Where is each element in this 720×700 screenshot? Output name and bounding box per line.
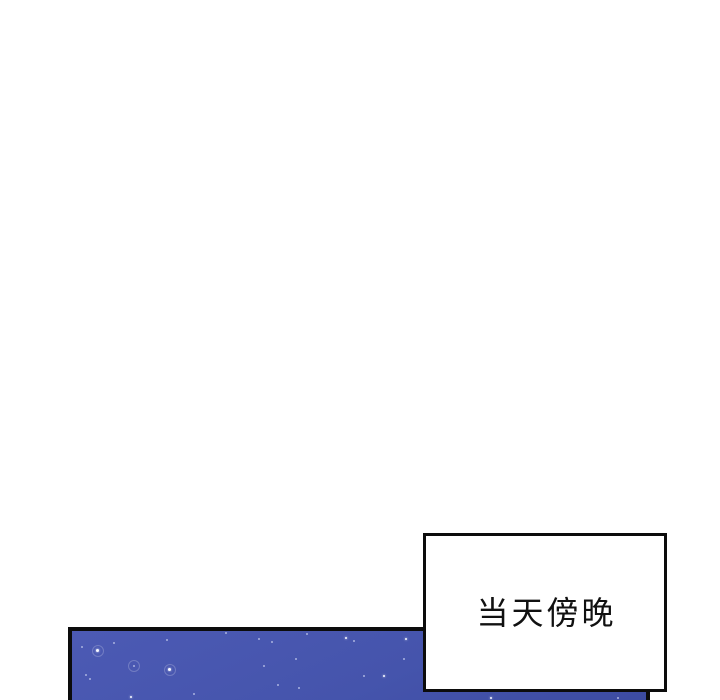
- star-dot: [617, 697, 619, 699]
- star-dot: [345, 637, 347, 639]
- caption-text: 当天傍晚: [473, 597, 616, 629]
- star-dot: [403, 658, 405, 660]
- star-dot: [490, 697, 492, 699]
- star-dot: [89, 678, 91, 680]
- star-dot: [298, 687, 300, 689]
- star-dot: [277, 684, 279, 686]
- star-dot: [193, 693, 195, 695]
- star-dot: [271, 641, 273, 643]
- star-dot: [258, 638, 260, 640]
- star-dot: [263, 665, 265, 667]
- star-dot: [96, 649, 99, 652]
- star-dot: [363, 675, 365, 677]
- star-dot: [168, 668, 171, 671]
- star-dot: [81, 646, 83, 648]
- star-dot: [225, 632, 227, 634]
- star-dot: [133, 665, 135, 667]
- star-dot: [113, 642, 115, 644]
- comic-page: 当天傍晚: [0, 0, 720, 700]
- star-dot: [166, 639, 168, 641]
- star-dot: [405, 638, 407, 640]
- star-dot: [130, 696, 132, 698]
- star-dot: [383, 675, 385, 677]
- star-dot: [85, 674, 87, 676]
- star-dot: [353, 640, 355, 642]
- caption-box: 当天傍晚: [423, 533, 667, 692]
- star-dot: [295, 658, 297, 660]
- star-dot: [306, 633, 308, 635]
